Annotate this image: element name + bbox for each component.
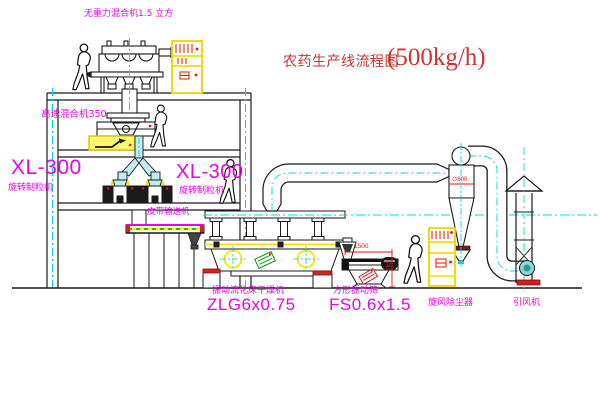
belt-conveyor — [126, 210, 204, 288]
exhaust-duct — [263, 164, 461, 211]
person-figure-roof — [73, 44, 91, 90]
diagram-title-capacity: (500kg/h) — [387, 45, 486, 70]
label-granulator-left-name: 旋转制粒机 — [8, 184, 53, 193]
granulator-right — [138, 180, 172, 203]
label-granulator-mid-name: 旋转制粒机 — [179, 187, 224, 196]
diagram-title: 农药生产线流程图 — [283, 55, 399, 69]
person-figure-ground — [404, 236, 422, 283]
label-granulator-left-model: XL-300 — [11, 157, 82, 178]
dimension-cyclone-diameter: ∅800 — [452, 177, 467, 183]
granulator-left — [103, 180, 137, 203]
label-belt-conveyor: 皮带输送机 — [147, 208, 190, 217]
label-cyclone: 旋风除尘器 — [428, 299, 473, 308]
label-gravity-mixer: 无重力混合机1.5 立方 — [84, 10, 173, 19]
label-fan: 引风机 — [513, 299, 540, 308]
control-cabinet-top — [172, 41, 202, 93]
label-high-speed-mixer: 高速混合机350 — [41, 110, 107, 120]
dimension-sieve-height: 741 — [384, 261, 390, 271]
process-flow-diagram: 无重力混合机1.5 立方 农药生产线流程图 (500kg/h) 高速混合机350… — [0, 0, 600, 403]
dimension-sieve-length: 1500 — [354, 244, 368, 251]
label-sieve-model: FS0.6x1.5 — [329, 296, 411, 313]
label-granulator-mid-model: XL-300 — [176, 162, 244, 182]
label-dryer-model: ZLG6x0.75 — [207, 296, 296, 313]
control-cabinet-dust — [429, 228, 455, 286]
fluid-bed-dryer — [203, 211, 345, 288]
